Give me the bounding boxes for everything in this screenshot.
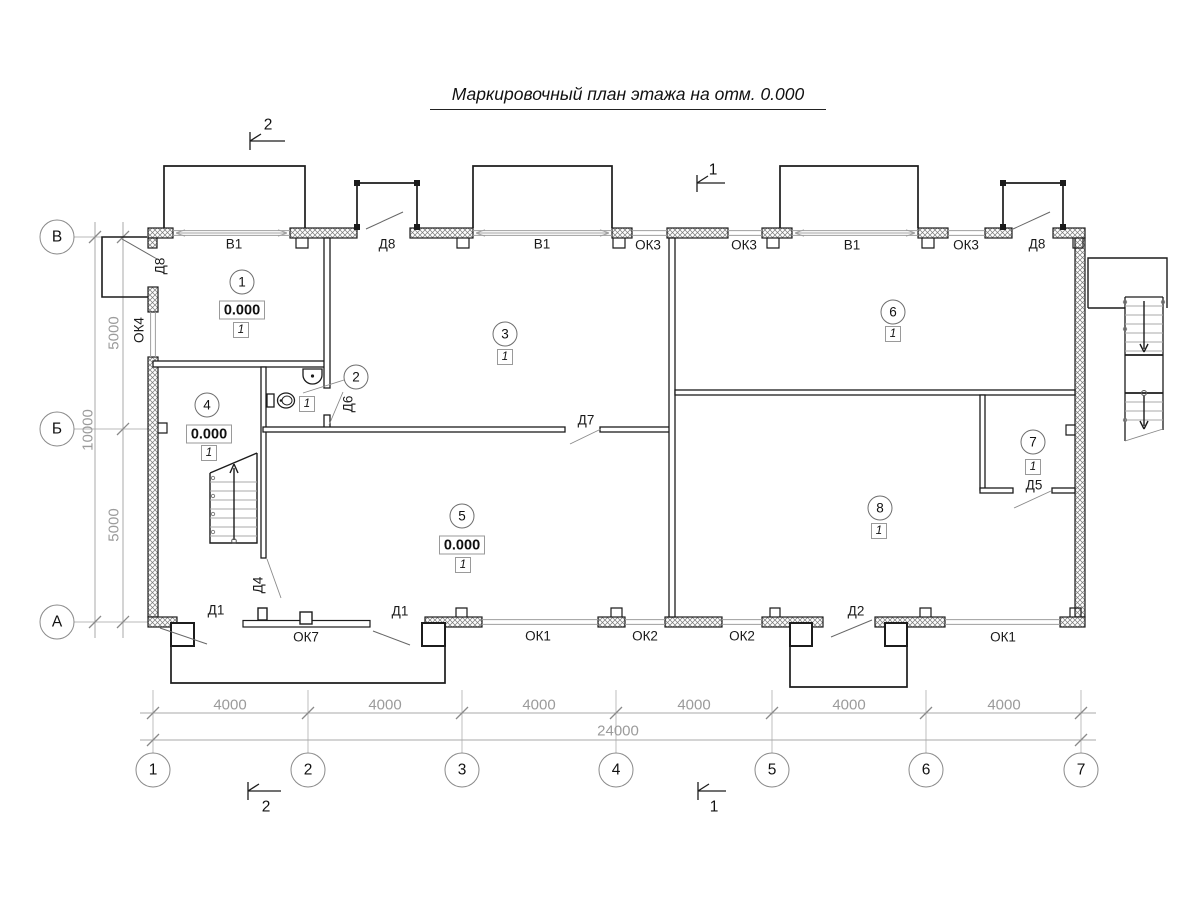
axis-col-1: 1 — [136, 753, 171, 788]
opening-label-d1: Д1 — [392, 604, 409, 618]
opening-label-d4: Д4 — [251, 577, 265, 594]
axis-row-v: В — [40, 220, 75, 255]
interior-walls — [153, 238, 1075, 617]
room-6-finish: 1 — [885, 326, 901, 342]
opening-label-ok3: ОК3 — [635, 238, 661, 252]
section-mark-2-top: 2 — [264, 117, 273, 133]
opening-label-d8: Д8 — [1029, 237, 1046, 251]
opening-label-ok7: ОК7 — [293, 630, 319, 644]
opening-label-v1: В1 — [844, 238, 861, 252]
room-8-number: 8 — [868, 496, 893, 521]
room-6-number: 6 — [881, 300, 906, 325]
section-mark-2-bottom: 2 — [262, 799, 271, 815]
dim-4000: 4000 — [677, 698, 710, 713]
room-2-finish: 1 — [299, 396, 315, 412]
room-5-finish: 1 — [455, 557, 471, 573]
section-mark-1-bottom: 1 — [710, 799, 719, 815]
opening-label-d1: Д1 — [208, 603, 225, 617]
dim-4000: 4000 — [987, 698, 1020, 713]
room-4-elevation: 0.000 — [186, 425, 232, 444]
room-5-elevation: 0.000 — [439, 536, 485, 555]
opening-label-d8: Д8 — [379, 237, 396, 251]
dim-4000: 4000 — [522, 698, 555, 713]
room-7-number: 7 — [1021, 430, 1046, 455]
opening-label-d2: Д2 — [848, 604, 865, 618]
room-1-number: 1 — [230, 270, 255, 295]
axis-row-a: А — [40, 605, 75, 640]
dim-5000: 5000 — [107, 508, 122, 541]
room-7-finish: 1 — [1025, 459, 1041, 475]
room-4-number: 4 — [195, 393, 220, 418]
opening-label-d7: Д7 — [578, 413, 595, 427]
dim-4000: 4000 — [368, 698, 401, 713]
canopies — [164, 166, 918, 228]
storefront-window — [243, 608, 370, 627]
opening-label-ok1: ОК1 — [990, 630, 1016, 644]
opening-label-ok4: ОК4 — [132, 317, 146, 343]
axis-col-7: 7 — [1064, 753, 1099, 788]
opening-label-v1: В1 — [534, 237, 551, 251]
room-4-finish: 1 — [201, 445, 217, 461]
dim-4000: 4000 — [832, 698, 865, 713]
opening-label-ok2: ОК2 — [632, 629, 658, 643]
axis-col-5: 5 — [755, 753, 790, 788]
floor-plan-drawing: Маркировочный план этажа на отм. 0.000 1… — [0, 0, 1200, 900]
room-3-number: 3 — [493, 322, 518, 347]
opening-label-ok1: ОК1 — [525, 629, 551, 643]
toilet-tank-icon — [267, 394, 274, 407]
opening-label-d6: Д6 — [341, 396, 355, 413]
section-mark-1-top: 1 — [709, 162, 718, 178]
external-stairs — [1088, 258, 1167, 441]
axis-row-b: Б — [40, 412, 75, 447]
room-1-finish: 1 — [233, 322, 249, 338]
opening-label-d5: Д5 — [1026, 478, 1043, 492]
internal-stairs — [210, 453, 257, 543]
room-1-elevation: 0.000 — [219, 301, 265, 320]
room-8-finish: 1 — [871, 523, 887, 539]
leader-lines — [267, 380, 1051, 598]
axis-col-4: 4 — [599, 753, 634, 788]
opening-label-ok2: ОК2 — [729, 629, 755, 643]
axis-col-3: 3 — [445, 753, 480, 788]
room-3-finish: 1 — [497, 349, 513, 365]
opening-label-v1: В1 — [226, 237, 243, 251]
room-2-number: 2 — [344, 365, 369, 390]
dim-4000: 4000 — [213, 698, 246, 713]
opening-label-ok3: ОК3 — [731, 238, 757, 252]
opening-label-ok3: ОК3 — [953, 238, 979, 252]
drawing-title: Маркировочный план этажа на отм. 0.000 — [430, 84, 826, 110]
room-5-number: 5 — [450, 504, 475, 529]
axis-col-6: 6 — [909, 753, 944, 788]
dim-24000: 24000 — [597, 724, 639, 739]
dim-10000: 10000 — [81, 409, 96, 451]
opening-label-d8: Д8 — [153, 258, 167, 275]
axis-col-2: 2 — [291, 753, 326, 788]
dim-5000: 5000 — [107, 316, 122, 349]
